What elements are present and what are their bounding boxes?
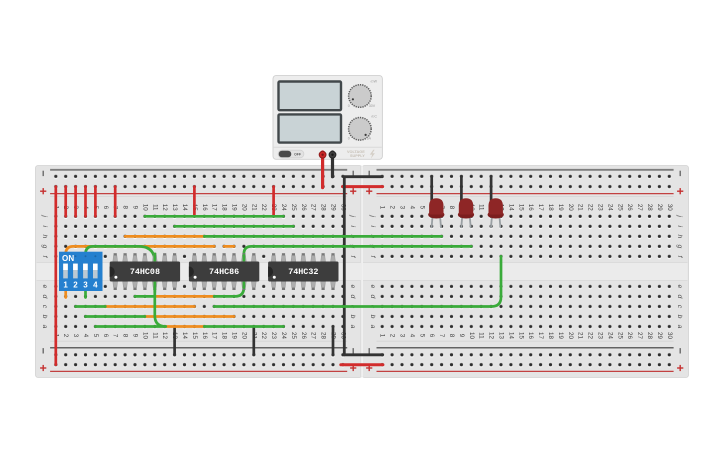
svg-text:14: 14 (507, 332, 514, 339)
svg-text:d: d (349, 295, 356, 299)
svg-text:14: 14 (181, 332, 188, 339)
svg-text:5: 5 (418, 206, 425, 210)
svg-text:22: 22 (587, 332, 594, 339)
svg-text:16: 16 (201, 204, 208, 211)
svg-text:20: 20 (240, 204, 247, 211)
svg-text:19: 19 (557, 204, 564, 211)
svg-text:25: 25 (290, 332, 297, 339)
svg-text:a: a (349, 325, 356, 329)
svg-text:e: e (41, 285, 48, 289)
svg-text:23: 23 (597, 204, 604, 211)
svg-text:29: 29 (330, 204, 337, 211)
svg-text:10: 10 (141, 204, 148, 211)
svg-text:5: 5 (418, 334, 425, 338)
svg-text:12: 12 (161, 332, 168, 339)
svg-text:11: 11 (478, 204, 485, 211)
svg-text:22: 22 (260, 332, 267, 339)
svg-text:27: 27 (310, 332, 317, 339)
svg-text:14: 14 (181, 204, 188, 211)
svg-text:8: 8 (448, 206, 455, 210)
svg-text:a: a (369, 325, 376, 329)
svg-text:15: 15 (191, 332, 198, 339)
svg-text:16: 16 (527, 332, 534, 339)
svg-text:13: 13 (171, 204, 178, 211)
svg-text:7: 7 (438, 334, 445, 338)
svg-text:14: 14 (507, 204, 514, 211)
svg-text:17: 17 (211, 332, 218, 339)
svg-text:30: 30 (666, 204, 673, 211)
svg-text:18: 18 (547, 332, 554, 339)
svg-text:c: c (41, 305, 48, 309)
svg-text:3: 3 (72, 334, 79, 338)
svg-text:b: b (41, 315, 48, 319)
svg-text:2: 2 (73, 280, 78, 289)
svg-text:23: 23 (597, 332, 604, 339)
svg-text:22: 22 (587, 204, 594, 211)
svg-text:6: 6 (102, 334, 109, 338)
svg-text:15: 15 (517, 332, 524, 339)
svg-text:d: d (676, 295, 683, 299)
svg-text:OFF: OFF (294, 152, 301, 156)
svg-text:e: e (349, 285, 356, 289)
svg-text:ON: ON (62, 254, 74, 263)
svg-text:b: b (676, 315, 683, 319)
svg-text:16: 16 (527, 204, 534, 211)
svg-text:26: 26 (300, 332, 307, 339)
svg-text:26: 26 (626, 204, 633, 211)
svg-text:◴W: ◴W (370, 80, 377, 84)
svg-text:24: 24 (280, 332, 287, 339)
svg-text:22: 22 (260, 204, 267, 211)
svg-text:4: 4 (408, 206, 415, 210)
svg-text:e: e (676, 285, 683, 289)
svg-text:13: 13 (498, 332, 505, 339)
svg-text:e: e (369, 285, 376, 289)
svg-text:17: 17 (211, 204, 218, 211)
svg-text:6: 6 (102, 206, 109, 210)
svg-text:27: 27 (636, 204, 643, 211)
svg-text:26: 26 (626, 332, 633, 339)
svg-text:28: 28 (320, 332, 327, 339)
svg-text:10: 10 (141, 332, 148, 339)
svg-text:g: g (676, 245, 683, 249)
svg-text:11: 11 (478, 332, 485, 339)
svg-text:30V: 30V (369, 104, 376, 108)
svg-text:18: 18 (221, 332, 228, 339)
svg-text:11: 11 (151, 204, 158, 211)
svg-text:4: 4 (408, 334, 415, 338)
svg-text:9: 9 (132, 334, 139, 338)
svg-text:0: 0 (348, 137, 350, 141)
svg-text:19: 19 (231, 204, 238, 211)
svg-text:29: 29 (656, 332, 663, 339)
svg-text:3: 3 (399, 334, 406, 338)
svg-text:11: 11 (151, 332, 158, 339)
svg-text:29: 29 (656, 204, 663, 211)
svg-text:20: 20 (240, 332, 247, 339)
svg-text:74HC86: 74HC86 (209, 267, 239, 277)
svg-text:h: h (676, 235, 683, 239)
svg-text:27: 27 (310, 204, 317, 211)
svg-text:25: 25 (616, 204, 623, 211)
svg-text:28: 28 (320, 204, 327, 211)
svg-text:28: 28 (646, 204, 653, 211)
svg-text:21: 21 (250, 204, 257, 211)
svg-text:c: c (676, 305, 683, 309)
svg-text:12: 12 (488, 332, 495, 339)
svg-text:b: b (369, 315, 376, 319)
svg-text:12: 12 (161, 204, 168, 211)
svg-text:2: 2 (389, 334, 396, 338)
svg-text:a: a (676, 325, 683, 329)
svg-text:21: 21 (577, 332, 584, 339)
svg-text:8: 8 (122, 334, 129, 338)
svg-text:17: 17 (537, 332, 544, 339)
svg-text:h: h (41, 235, 48, 239)
svg-text:19: 19 (231, 332, 238, 339)
svg-text:27: 27 (636, 332, 643, 339)
svg-text:5A: 5A (367, 137, 372, 141)
svg-text:23: 23 (270, 332, 277, 339)
svg-text:9: 9 (132, 206, 139, 210)
svg-text:24: 24 (606, 204, 613, 211)
svg-text:16: 16 (201, 332, 208, 339)
svg-text:18: 18 (221, 204, 228, 211)
svg-text:17: 17 (537, 204, 544, 211)
svg-text:19: 19 (557, 332, 564, 339)
svg-text:3: 3 (399, 206, 406, 210)
svg-text:b: b (349, 315, 356, 319)
svg-text:d: d (369, 295, 376, 299)
svg-text:28: 28 (646, 332, 653, 339)
svg-text:8: 8 (448, 334, 455, 338)
svg-text:SUPPLY: SUPPLY (350, 154, 365, 158)
svg-text:21: 21 (577, 204, 584, 211)
svg-text:◴C: ◴C (371, 114, 377, 118)
svg-text:4: 4 (93, 280, 98, 289)
svg-text:1: 1 (379, 334, 386, 338)
svg-text:a: a (41, 325, 48, 329)
svg-text:8: 8 (122, 206, 129, 210)
svg-text:25: 25 (290, 204, 297, 211)
svg-text:15: 15 (517, 204, 524, 211)
svg-text:4: 4 (82, 334, 89, 338)
svg-text:74HC32: 74HC32 (288, 267, 318, 277)
svg-text:6: 6 (428, 334, 435, 338)
svg-text:20: 20 (567, 332, 574, 339)
svg-text:2: 2 (62, 334, 69, 338)
svg-text:0: 0 (348, 104, 350, 108)
svg-text:1: 1 (63, 280, 68, 289)
svg-text:3: 3 (83, 280, 88, 289)
svg-text:2: 2 (389, 206, 396, 210)
svg-text:74HC08: 74HC08 (130, 267, 160, 277)
svg-text:7: 7 (112, 334, 119, 338)
svg-text:9: 9 (458, 334, 465, 338)
svg-text:24: 24 (280, 204, 287, 211)
svg-text:10: 10 (468, 332, 475, 339)
svg-text:26: 26 (300, 204, 307, 211)
svg-text:d: d (41, 295, 48, 299)
svg-text:24: 24 (606, 332, 613, 339)
svg-text:20: 20 (567, 204, 574, 211)
svg-text:5: 5 (92, 334, 99, 338)
svg-text:25: 25 (616, 332, 623, 339)
svg-text:30: 30 (666, 332, 673, 339)
svg-text:1: 1 (379, 206, 386, 210)
svg-text:18: 18 (547, 204, 554, 211)
svg-text:g: g (41, 245, 48, 249)
